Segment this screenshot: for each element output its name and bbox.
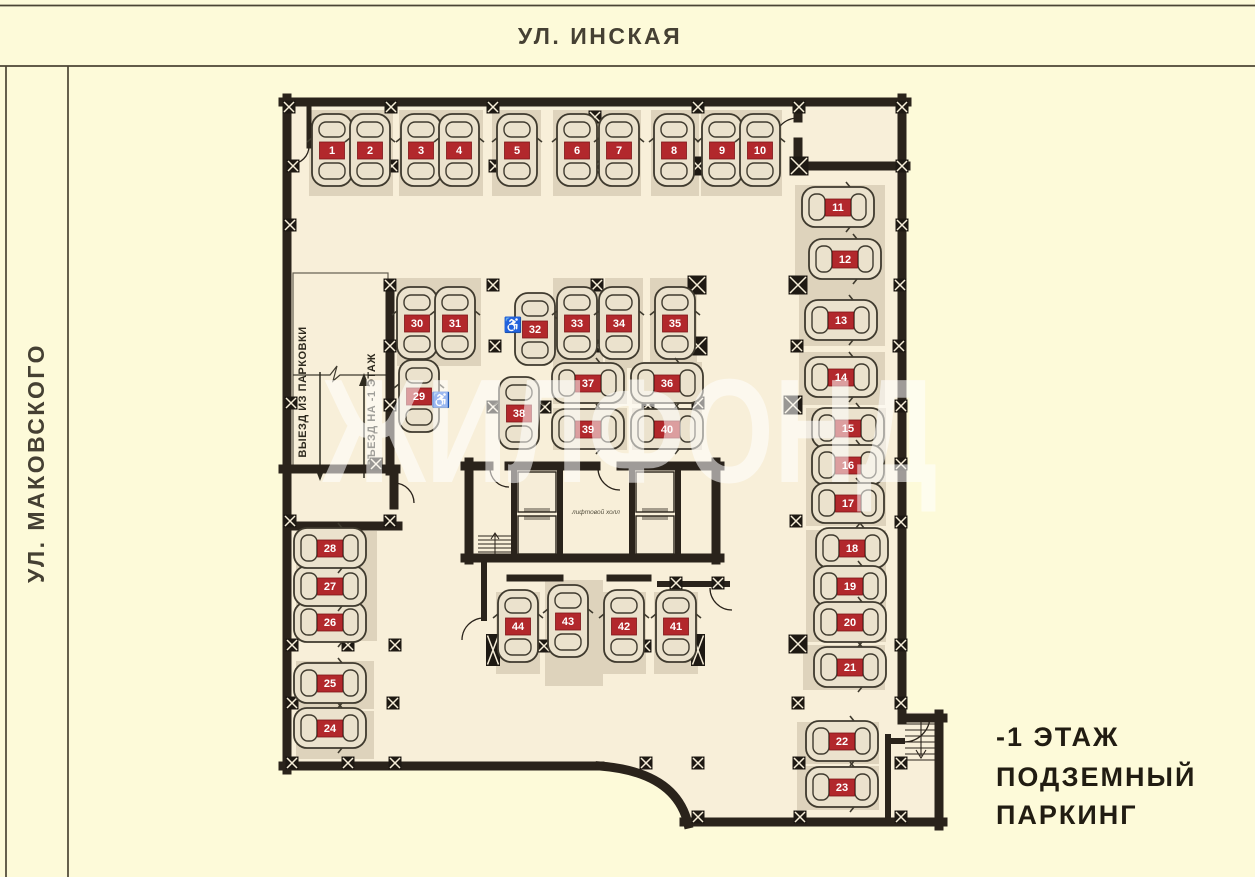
column-marker — [895, 516, 908, 529]
column-marker — [790, 157, 809, 176]
spot-badge-33: 33 — [565, 315, 590, 332]
column-marker — [794, 811, 807, 824]
column-marker — [286, 757, 299, 770]
street-label-top: УЛ. ИНСКАЯ — [518, 23, 682, 49]
column-marker — [284, 515, 297, 528]
column-marker — [487, 279, 500, 292]
spot-number: 25 — [324, 678, 336, 690]
spot-badge-32: 32 — [523, 321, 548, 338]
spot-number: 3 — [418, 145, 424, 157]
floor-title-line3: ПАРКИНГ — [996, 800, 1138, 830]
spot-number: 42 — [618, 621, 630, 633]
column-marker — [793, 757, 806, 770]
spot-number: 44 — [512, 621, 525, 633]
column-marker — [670, 577, 683, 590]
spot-badge-21: 21 — [838, 659, 863, 676]
spot-badge-19: 19 — [838, 578, 863, 595]
spot-number: 8 — [671, 145, 677, 157]
column-marker — [896, 219, 909, 232]
column-marker — [895, 811, 908, 824]
spot-number: 27 — [324, 581, 336, 593]
page: УЛ. ИНСКАЯ УЛ. МАКОВСКОГО ВЫЕЗД ИЗ ПАРКО… — [0, 0, 1255, 877]
spot-badge-2: 2 — [358, 142, 383, 159]
spot-number: 10 — [754, 145, 766, 157]
column-marker — [384, 279, 397, 292]
spot-badge-34: 34 — [607, 315, 632, 332]
column-marker — [640, 757, 653, 770]
spot-number: 12 — [839, 254, 851, 266]
spot-badge-28: 28 — [318, 540, 343, 557]
spot-badge-26: 26 — [318, 614, 343, 631]
spot-badge-41: 41 — [664, 618, 689, 635]
column-marker — [896, 101, 909, 114]
spot-badge-13: 13 — [829, 312, 854, 329]
spot-badge-12: 12 — [833, 251, 858, 268]
spot-number: 13 — [835, 315, 847, 327]
column-marker — [894, 279, 907, 292]
column-marker — [387, 697, 400, 710]
spot-number: 20 — [844, 617, 856, 629]
column-marker — [284, 219, 297, 232]
spot-badge-35: 35 — [663, 315, 688, 332]
column-marker — [790, 515, 803, 528]
spot-number: 7 — [616, 145, 622, 157]
spot-number: 22 — [836, 736, 848, 748]
column-marker — [389, 757, 402, 770]
column-marker — [789, 276, 808, 295]
spot-badge-27: 27 — [318, 578, 343, 595]
spot-badge-1: 1 — [320, 142, 345, 159]
spot-number: 32 — [529, 324, 541, 336]
spot-badge-31: 31 — [443, 315, 468, 332]
column-marker — [385, 101, 398, 114]
column-marker — [895, 757, 908, 770]
elevator-shaft — [518, 516, 556, 554]
spot-badge-3: 3 — [409, 142, 434, 159]
spot-badge-44: 44 — [506, 618, 531, 635]
spot-number: 1 — [329, 145, 335, 157]
floor-title: -1 ЭТАЖ ПОДЗЕМНЫЙ ПАРКИНГ — [996, 722, 1196, 830]
spot-number: 31 — [449, 318, 461, 330]
spot-number: 18 — [846, 543, 858, 555]
column-marker — [692, 811, 705, 824]
column-marker — [692, 757, 705, 770]
spot-number: 11 — [832, 202, 844, 214]
spot-number: 23 — [836, 782, 848, 794]
column-marker — [712, 577, 725, 590]
spot-badge-43: 43 — [556, 613, 581, 630]
spot-number: 33 — [571, 318, 583, 330]
ramp-exit-label: ВЫЕЗД ИЗ ПАРКОВКИ — [297, 326, 309, 457]
floor-plan: УЛ. ИНСКАЯ УЛ. МАКОВСКОГО ВЫЕЗД ИЗ ПАРКО… — [0, 0, 1255, 877]
spot-number: 35 — [669, 318, 681, 330]
elevator-shaft — [636, 516, 674, 554]
spot-number: 5 — [514, 145, 520, 157]
column-marker — [896, 160, 909, 173]
wheelchair-icon: ♿ — [504, 316, 523, 334]
column-marker — [389, 639, 402, 652]
spot-badge-23: 23 — [830, 779, 855, 796]
spot-number: 24 — [324, 723, 337, 735]
floor-title-line2: ПОДЗЕМНЫЙ — [996, 761, 1196, 792]
spot-badge-22: 22 — [830, 733, 855, 750]
spot-number: 28 — [324, 543, 336, 555]
spot-badge-5: 5 — [505, 142, 530, 159]
spot-badge-18: 18 — [840, 540, 865, 557]
column-marker — [384, 515, 397, 528]
column-marker — [487, 101, 500, 114]
column-marker — [793, 101, 806, 114]
column-marker — [342, 757, 355, 770]
column-marker — [792, 697, 805, 710]
spot-badge-10: 10 — [748, 142, 773, 159]
column-marker — [286, 639, 299, 652]
spot-badge-20: 20 — [838, 614, 863, 631]
spot-badge-8: 8 — [662, 142, 687, 159]
spot-number: 6 — [574, 145, 580, 157]
spot-number: 26 — [324, 617, 336, 629]
column-marker — [287, 160, 300, 173]
spot-badge-6: 6 — [565, 142, 590, 159]
watermark: ЖИЛФОНД — [322, 349, 938, 514]
street-label-left: УЛ. МАКОВСКОГО — [23, 343, 49, 583]
spot-number: 30 — [411, 318, 423, 330]
spot-badge-30: 30 — [405, 315, 430, 332]
spot-number: 41 — [670, 621, 682, 633]
spot-number: 34 — [613, 318, 626, 330]
spot-badge-42: 42 — [612, 618, 637, 635]
column-marker — [895, 639, 908, 652]
column-marker — [285, 397, 298, 410]
spot-number: 43 — [562, 616, 574, 628]
column-marker — [789, 635, 808, 654]
spot-number: 21 — [844, 662, 856, 674]
spot-number: 4 — [456, 145, 463, 157]
spot-badge-7: 7 — [607, 142, 632, 159]
column-marker — [692, 101, 705, 114]
floor-title-line1: -1 ЭТАЖ — [996, 722, 1119, 752]
spot-number: 9 — [719, 145, 725, 157]
spot-number: 2 — [367, 145, 373, 157]
spot-badge-25: 25 — [318, 675, 343, 692]
spot-badge-24: 24 — [318, 720, 343, 737]
spot-badge-4: 4 — [447, 142, 472, 159]
spot-badge-11: 11 — [826, 199, 851, 216]
column-marker — [283, 101, 296, 114]
column-marker — [895, 697, 908, 710]
spot-number: 19 — [844, 581, 856, 593]
spot-badge-9: 9 — [710, 142, 735, 159]
